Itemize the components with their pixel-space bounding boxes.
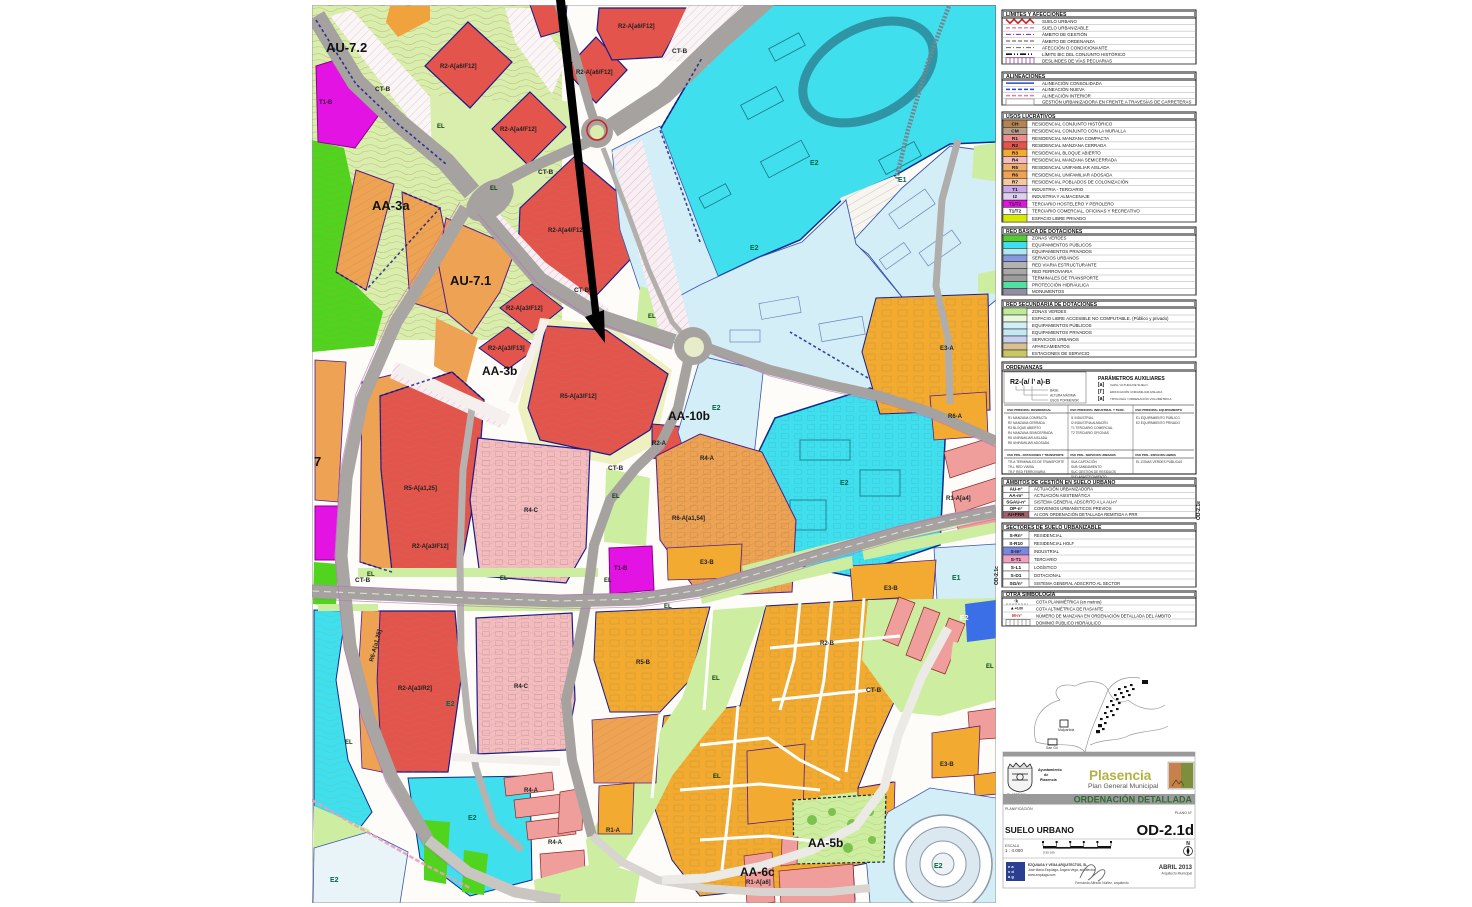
svg-text:R3: R3 <box>1012 150 1018 156</box>
svg-text:T1/T2: T1/T2 <box>1009 209 1022 215</box>
svg-text:MONUMENTOS: MONUMENTOS <box>1032 289 1064 294</box>
svg-text:AA-6c: AA-6c <box>740 865 775 879</box>
svg-text:ZONAS VERDES: ZONAS VERDES <box>1032 236 1066 241</box>
svg-text:T1-B: T1-B <box>319 100 333 106</box>
svg-text:EL: EL <box>712 676 720 682</box>
svg-text:ORDENACIÓN DETALLADA: ORDENACIÓN DETALLADA <box>1074 794 1193 805</box>
svg-text:N: N <box>1186 841 1190 847</box>
svg-text:CT-B: CT-B <box>375 86 390 93</box>
svg-text:RESIDENCIAL HOLF: RESIDENCIAL HOLF <box>1034 541 1075 546</box>
svg-text:EQUIPAMIENTOS PRIVADOS: EQUIPAMIENTOS PRIVADOS <box>1032 330 1092 335</box>
svg-text:TERMINALES DE TRANSPORTE: TERMINALES DE TRANSPORTE <box>1032 276 1099 281</box>
svg-text:PROTECCIÓN HIDRÁULICA: PROTECCIÓN HIDRÁULICA <box>1032 282 1089 287</box>
svg-text:T2 TERCIARIO OFICINAS: T2 TERCIARIO OFICINAS <box>1071 431 1109 435</box>
svg-text:EQUIPAMIENTOS PRIVADOS: EQUIPAMIENTOS PRIVADOS <box>1032 249 1092 254</box>
svg-text:ACTUACIÓN ASISTEMÁTICA: ACTUACIÓN ASISTEMÁTICA <box>1034 493 1091 498</box>
svg-text:S-R10: S-R10 <box>1009 541 1023 547</box>
svg-text:TR-A TERMINALES DE TRANSPORTE: TR-A TERMINALES DE TRANSPORTE <box>1008 460 1064 464</box>
svg-text:CT-B: CT-B <box>574 287 589 294</box>
svg-text:APARCAMIENTOS: APARCAMIENTOS <box>1032 344 1070 349</box>
svg-text:LÍMITE BIC DEL CONJUNTO HISTÓR: LÍMITE BIC DEL CONJUNTO HISTÓRICO <box>1042 52 1126 57</box>
svg-text:OD-2.1e: OD-2.1e <box>1196 501 1202 520</box>
svg-text:R1-A[a4]: R1-A[a4] <box>946 496 971 502</box>
svg-text:OD-2.1c: OD-2.1c <box>994 566 1000 585</box>
svg-text:E2: E2 <box>810 160 819 167</box>
svg-text:▲+0,00: ▲+0,00 <box>1010 606 1023 611</box>
svg-text:E2: E2 <box>840 480 849 487</box>
svg-text:COTA ALTIMÉTRICA DE RASANTE: COTA ALTIMÉTRICA DE RASANTE <box>1036 606 1103 611</box>
svg-text:ABRIL 2013: ABRIL 2013 <box>1159 865 1193 871</box>
svg-text:E3-A: E3-A <box>940 346 954 352</box>
svg-text:de: de <box>1044 773 1048 777</box>
svg-text:AI CON ORDENACIÓN DETALLADA RE: AI CON ORDENACIÓN DETALLADA REMITIDA A P… <box>1034 512 1137 517</box>
svg-text:RESIDENCIAL POBLADOS DE COLONI: RESIDENCIAL POBLADOS DE COLONIZACIÓN <box>1032 180 1128 185</box>
svg-text:T1-B: T1-B <box>614 566 628 572</box>
svg-text:ALINEACIÓN INTERIOR: ALINEACIÓN INTERIOR <box>1042 93 1091 98</box>
svg-text:San Gil: San Gil <box>1046 746 1058 750</box>
svg-text:SISTEMA GENERAL ADSCRITO AL SE: SISTEMA GENERAL ADSCRITO AL SECTOR <box>1034 581 1120 586</box>
svg-text:Plasencia: Plasencia <box>1040 778 1058 782</box>
svg-text:USOS LUCRATIVOS: USOS LUCRATIVOS <box>1006 114 1056 120</box>
svg-text:ALINEACIÓN CONSOLIDADA: ALINEACIÓN CONSOLIDADA <box>1042 81 1102 86</box>
svg-text:RESIDENCIAL BLOQUE ABIERTO: RESIDENCIAL BLOQUE ABIERTO <box>1032 150 1101 155</box>
svg-text:RESIDENCIAL UNIFAMILIAR ADOSAD: RESIDENCIAL UNIFAMILIAR ADOSADA <box>1032 172 1112 177</box>
svg-text:AU-n°: AU-n° <box>1010 487 1023 492</box>
svg-text:Malpartida: Malpartida <box>1058 728 1074 732</box>
svg-text:SERVICIOS URBANOS: SERVICIOS URBANOS <box>1032 256 1079 261</box>
svg-text:EQUIPAMIENTOS PÚBLICOS: EQUIPAMIENTOS PÚBLICOS <box>1032 242 1092 247</box>
svg-text:CONVENIOS URBANÍSTICOS PREVIOS: CONVENIOS URBANÍSTICOS PREVIOS <box>1034 506 1112 511</box>
svg-text:E3-B: E3-B <box>700 560 714 566</box>
svg-text:OD-2.1d: OD-2.1d <box>1136 822 1194 839</box>
svg-text:SUC GESTIÓN DE RESIDUOS: SUC GESTIÓN DE RESIDUOS <box>1071 469 1116 474</box>
svg-text:E1: E1 <box>952 575 961 582</box>
svg-text:EZQUIAGA Y VEGA ARQUITECTOS, S: EZQUIAGA Y VEGA ARQUITECTOS, SL <box>1028 863 1087 867</box>
svg-text:E2: E2 <box>446 701 455 708</box>
svg-text:PLANO N°: PLANO N° <box>1175 811 1193 815</box>
svg-text:R2-A: R2-A <box>652 441 667 447</box>
svg-text:AFECCIÓN O CONDICIONANTE: AFECCIÓN O CONDICIONANTE <box>1042 45 1107 50</box>
svg-text:CM: CM <box>1011 129 1018 135</box>
svg-text:EL: EL <box>490 186 498 192</box>
svg-text:AA-5b: AA-5b <box>808 836 843 850</box>
svg-text:www.ezquiaga.com: www.ezquiaga.com <box>1028 873 1056 877</box>
svg-text:I2 INDUSTRIA ALMACÉN: I2 INDUSTRIA ALMACÉN <box>1071 420 1108 425</box>
svg-text:T1/T2: T1/T2 <box>1009 201 1022 207</box>
svg-text:R4 MANZANA SEMICERRADA: R4 MANZANA SEMICERRADA <box>1008 431 1054 435</box>
svg-text:ÁMBITO DE GESTIÓN: ÁMBITO DE GESTIÓN <box>1042 32 1087 37</box>
svg-text:Fernando Alfredo Núñez, arquit: Fernando Alfredo Núñez, arquitecto <box>1075 881 1129 885</box>
svg-text:EL: EL <box>437 124 445 130</box>
svg-text:S-In°: S-In° <box>1011 549 1022 555</box>
svg-text:Arquitecto Municipal: Arquitecto Municipal <box>1161 872 1192 876</box>
svg-text:CT-B: CT-B <box>866 687 881 694</box>
svg-text:E2: E2 <box>330 877 339 884</box>
svg-text:AA-3b: AA-3b <box>482 364 517 378</box>
svg-text:USO PRINCIPAL EQUIPAMIENTO: USO PRINCIPAL EQUIPAMIENTO <box>1135 408 1183 412</box>
svg-text:R2-A[a4/F12]: R2-A[a4/F12] <box>548 228 585 234</box>
svg-text:RED FERROVIARIA: RED FERROVIARIA <box>1032 269 1072 274</box>
svg-text:ALTURA MÁXIMA: ALTURA MÁXIMA <box>1050 394 1076 398</box>
svg-text:EL: EL <box>713 774 721 780</box>
svg-text:E1: E1 <box>898 177 907 184</box>
svg-text:R6: R6 <box>1012 172 1018 178</box>
svg-text:R2-B: R2-B <box>820 641 835 647</box>
svg-text:0 50 100: 0 50 100 <box>1043 851 1055 855</box>
svg-text:[a]: [a] <box>1098 396 1104 402</box>
svg-text:CAPA / ALTURA DE SUELO: CAPA / ALTURA DE SUELO <box>1110 383 1148 387</box>
svg-text:T1: T1 <box>1012 187 1018 193</box>
svg-text:R2-A[a3/R2]: R2-A[a3/R2] <box>398 686 432 692</box>
svg-text:EL: EL <box>345 740 353 746</box>
svg-text:ORDENANZAS: ORDENANZAS <box>1006 365 1043 371</box>
svg-text:ACTUACIÓN URBANIZADORA: ACTUACIÓN URBANIZADORA <box>1034 487 1093 492</box>
svg-text:RED SECUNDARIA DE DOTACIONES: RED SECUNDARIA DE DOTACIONES <box>1006 302 1098 308</box>
svg-text:[l’]: [l’] <box>1098 389 1104 395</box>
svg-text:SUA CAPTACIÓN: SUA CAPTACIÓN <box>1071 459 1097 464</box>
svg-text:DOMINIO PÚBLICO HIDRÁULICO: DOMINIO PÚBLICO HIDRÁULICO <box>1036 620 1102 625</box>
svg-text:ALINEACIÓN NUEVA: ALINEACIÓN NUEVA <box>1042 87 1085 92</box>
svg-text:RESIDENCIAL UNIFAMILIAR AISLAD: RESIDENCIAL UNIFAMILIAR AISLADA <box>1032 165 1109 170</box>
svg-text:R2-A[a3/F13]: R2-A[a3/F13] <box>488 346 525 352</box>
svg-text:RESIDENCIAL MANZANA SEMICERRAD: RESIDENCIAL MANZANA SEMICERRADA <box>1032 158 1117 163</box>
svg-text:PARÁMETROS AUXILIARES: PARÁMETROS AUXILIARES <box>1098 375 1165 382</box>
svg-text:CT-B: CT-B <box>672 48 687 55</box>
svg-text:RESIDENCIAL CONJUNTO HISTÓRICO: RESIDENCIAL CONJUNTO HISTÓRICO <box>1032 121 1113 126</box>
svg-text:R1: R1 <box>1012 136 1018 142</box>
svg-text:R2-A[a3/F12]: R2-A[a3/F12] <box>506 306 543 312</box>
svg-text:R6-A[a1,54]: R6-A[a1,54] <box>672 516 705 522</box>
svg-text:R3 BLOQUE ABIERTO: R3 BLOQUE ABIERTO <box>1008 426 1041 430</box>
svg-text:E1 EQUIPAMIENTO PÚBLICO: E1 EQUIPAMIENTO PÚBLICO <box>1136 415 1180 420</box>
svg-text:R6 UNIFAMILIAR ADOSADA: R6 UNIFAMILIAR ADOSADA <box>1008 441 1050 445</box>
svg-text:ALINEACIONES: ALINEACIONES <box>1006 74 1046 80</box>
svg-text:R1-A[a6]: R1-A[a6] <box>746 880 771 886</box>
svg-text:OP-n°: OP-n° <box>1010 506 1023 511</box>
svg-text:I1 INDUSTRIAL: I1 INDUSTRIAL <box>1071 416 1094 420</box>
svg-text:E2: E2 <box>468 815 477 822</box>
svg-text:R2-A[a4/F12]: R2-A[a4/F12] <box>500 127 537 133</box>
svg-text:USO PPAL. DOTACIONES Y TRANSPO: USO PPAL. DOTACIONES Y TRANSPORTE <box>1007 453 1064 457</box>
svg-text:CH: CH <box>1012 121 1019 127</box>
svg-text:Plan General Municipal: Plan General Municipal <box>1088 783 1159 790</box>
svg-text:INDUSTRIAL: INDUSTRIAL <box>1034 549 1060 554</box>
svg-text:AU-7.1: AU-7.1 <box>450 273 491 288</box>
svg-text:AA-3a: AA-3a <box>372 198 410 213</box>
svg-text:R2-A[a6/F12]: R2-A[a6/F12] <box>576 70 613 76</box>
svg-text:SUELO URBANO: SUELO URBANO <box>1042 19 1077 24</box>
svg-text:TERCIARIO COMERCIAL, OFICINAS: TERCIARIO COMERCIAL, OFICINAS Y RECREATI… <box>1032 209 1140 214</box>
svg-text:TR-F RED FERROVIARIA: TR-F RED FERROVIARIA <box>1008 470 1046 474</box>
svg-text:R4-C: R4-C <box>524 508 539 514</box>
svg-text:ESTACIONES DE SERVICIO: ESTACIONES DE SERVICIO <box>1032 351 1090 356</box>
svg-text:ESPACIO LIBRE ACCESIBLE NO COM: ESPACIO LIBRE ACCESIBLE NO COMPUTABLE. (… <box>1032 316 1169 321</box>
svg-text:SGAU-n°: SGAU-n° <box>1006 499 1026 504</box>
svg-text:R5 UNIFAMILIAR AISLADA: R5 UNIFAMILIAR AISLADA <box>1008 436 1048 440</box>
svg-text:DESLINDES DE VÍAS PECUARIAS: DESLINDES DE VÍAS PECUARIAS <box>1042 59 1112 64</box>
svg-text:R2-A[a6/F12]: R2-A[a6/F12] <box>618 24 655 30</box>
svg-text:M-n°: M-n° <box>1012 613 1022 618</box>
svg-text:R2-(a/ l’ a)-B: R2-(a/ l’ a)-B <box>1010 379 1050 386</box>
svg-text:E2 EQUIPAMIENTO PRIVADO: E2 EQUIPAMIENTO PRIVADO <box>1136 421 1180 425</box>
svg-text:ZONAS VERDES: ZONAS VERDES <box>1032 309 1066 314</box>
svg-text:DOTACIONAL: DOTACIONAL <box>1034 573 1062 578</box>
svg-text:a g: a g <box>1008 874 1014 879</box>
svg-text:S-Rn°: S-Rn° <box>1009 533 1022 539</box>
svg-text:CT-B: CT-B <box>355 577 370 584</box>
svg-text:RED VIARIA ESTRUCTURANTE: RED VIARIA ESTRUCTURANTE <box>1032 262 1097 267</box>
svg-text:E3-B: E3-B <box>884 586 898 592</box>
svg-text:R5-A[a3/F12]: R5-A[a3/F12] <box>560 394 597 400</box>
svg-text:EDIFICACIÓN UNIFAMILIAR AISLAD: EDIFICACIÓN UNIFAMILIAR AISLADA <box>1110 389 1162 394</box>
svg-text:INDUSTRIA - TERCIARIO: INDUSTRIA - TERCIARIO <box>1032 187 1084 192</box>
svg-text:Ayuntamiento: Ayuntamiento <box>1038 768 1063 772</box>
svg-text:·k: ·k <box>1014 599 1018 604</box>
svg-text:COTA PLANIMÉTRICA (en metros): COTA PLANIMÉTRICA (en metros) <box>1036 599 1102 604</box>
svg-text:[a]: [a] <box>1098 382 1104 388</box>
svg-text:T1 TERCIARIO COMERCIAL: T1 TERCIARIO COMERCIAL <box>1071 426 1113 430</box>
svg-text:LOGÍSTICO: LOGÍSTICO <box>1034 565 1058 570</box>
svg-text:S-L1: S-L1 <box>1011 565 1022 571</box>
svg-text:EQUIPAMIENTOS PÚBLICOS: EQUIPAMIENTOS PÚBLICOS <box>1032 323 1092 328</box>
svg-text:USO PRINCIPAL INDUSTRIAL Y TER: USO PRINCIPAL INDUSTRIAL Y TERC. <box>1070 408 1125 412</box>
svg-text:7: 7 <box>314 454 321 469</box>
svg-text:EL: EL <box>986 664 994 670</box>
svg-text:USO PPAL. ESPACIOS LIBRES: USO PPAL. ESPACIOS LIBRES <box>1135 453 1176 457</box>
svg-text:GESTIÓN URBANIZADORA EN FRENTE: GESTIÓN URBANIZADORA EN FRENTE A TRAVESÍ… <box>1042 100 1191 105</box>
svg-text:Plasencia: Plasencia <box>1089 768 1152 783</box>
svg-text:ESPACIO LIBRE PRIVADO: ESPACIO LIBRE PRIVADO <box>1032 216 1086 221</box>
svg-text:ÁMBITOS DE GESTIÓN EN SUELO UR: ÁMBITOS DE GESTIÓN EN SUELO URBANO <box>1006 478 1115 486</box>
svg-text:TERCIARIO: TERCIARIO <box>1034 557 1058 562</box>
svg-text:PLANIFICACIÓN: PLANIFICACIÓN <box>1005 806 1033 811</box>
svg-text:R1-A: R1-A <box>606 828 621 834</box>
svg-text:RESIDENCIAL CONJUNTO CON LA MU: RESIDENCIAL CONJUNTO CON LA MURALLA <box>1032 129 1126 134</box>
svg-text:E2: E2 <box>712 405 721 412</box>
svg-text:SG/n°: SG/n° <box>1009 581 1022 587</box>
svg-text:R4: R4 <box>1012 158 1018 164</box>
svg-text:R4-A: R4-A <box>700 456 715 462</box>
svg-text:R5-B: R5-B <box>636 660 651 666</box>
svg-text:E2: E2 <box>960 615 969 622</box>
svg-text:R4-A: R4-A <box>548 840 563 846</box>
svg-text:S-T1: S-T1 <box>1011 557 1022 563</box>
svg-text:R2: R2 <box>1012 143 1018 149</box>
svg-text:LÍMITES Y AFECCIONES: LÍMITES Y AFECCIONES <box>1006 10 1067 18</box>
svg-text:E2: E2 <box>934 863 943 870</box>
svg-text:RESIDENCIAL MANZANA COMPACTA: RESIDENCIAL MANZANA COMPACTA <box>1032 136 1109 141</box>
svg-text:EL: EL <box>604 578 612 584</box>
svg-text:R7: R7 <box>1012 180 1018 186</box>
svg-text:R4-C: R4-C <box>514 684 529 690</box>
svg-text:R2-A[a6/F12]: R2-A[a6/F12] <box>440 64 477 70</box>
svg-text:SERVICIOS URBANOS: SERVICIOS URBANOS <box>1032 337 1079 342</box>
svg-text:ÁMBITO DE ORDENANZA: ÁMBITO DE ORDENANZA <box>1042 39 1095 44</box>
svg-text:SUB SANEAMIENTO: SUB SANEAMIENTO <box>1071 465 1102 469</box>
svg-text:RESIDENCIAL MANZANA CERRADA: RESIDENCIAL MANZANA CERRADA <box>1032 143 1106 148</box>
svg-text:RED BÁSICA DE DOTACIONES: RED BÁSICA DE DOTACIONES <box>1006 228 1083 235</box>
svg-text:SUELO URBANO: SUELO URBANO <box>1005 825 1074 835</box>
svg-text:TERCIARIO HOSTELERO Y PEROLERO: TERCIARIO HOSTELERO Y PEROLERO <box>1032 201 1114 206</box>
svg-text:RESIDENCIAL: RESIDENCIAL <box>1034 533 1063 538</box>
svg-text:EL ZONAS VERDES PÚBLICAS: EL ZONAS VERDES PÚBLICAS <box>1136 459 1182 464</box>
svg-text:TIPOLOGÍA / ORDENACIÓN VOLUMÉT: TIPOLOGÍA / ORDENACIÓN VOLUMÉTRICA <box>1110 396 1171 401</box>
svg-text:R5: R5 <box>1012 165 1018 171</box>
svg-text:EL: EL <box>664 604 672 610</box>
svg-text:R5-A[a1,25]: R5-A[a1,25] <box>404 486 437 492</box>
svg-text:E3-B: E3-B <box>940 762 954 768</box>
svg-text:R6-A: R6-A <box>948 414 963 420</box>
svg-text:I2: I2 <box>1013 194 1017 200</box>
svg-text:AI+PRR: AI+PRR <box>1008 512 1026 517</box>
svg-text:EL: EL <box>648 314 656 320</box>
svg-text:USOS PORMENOR: USOS PORMENOR <box>1050 399 1079 403</box>
svg-text:CT-B: CT-B <box>608 465 623 472</box>
svg-text:AA-m°: AA-m° <box>1009 493 1023 498</box>
svg-text:INDUSTRIA Y ALMACENAJE: INDUSTRIA Y ALMACENAJE <box>1032 194 1090 199</box>
svg-text:EL: EL <box>612 494 620 500</box>
svg-text:AA-10b: AA-10b <box>668 409 710 423</box>
svg-text:R1 MANZANA COMPACTA: R1 MANZANA COMPACTA <box>1008 416 1048 420</box>
svg-text:OTRA SIMBOLOGÍA: OTRA SIMBOLOGÍA <box>1006 590 1056 598</box>
svg-text:R4-A: R4-A <box>524 788 539 794</box>
svg-text:S-D1: S-D1 <box>1011 573 1022 579</box>
svg-text:USO PRINCIPAL RESIDENCIAL: USO PRINCIPAL RESIDENCIAL <box>1007 408 1052 412</box>
svg-text:USO PPAL. SERVICIOS URBANOS: USO PPAL. SERVICIOS URBANOS <box>1070 453 1116 457</box>
svg-text:R2-A[a3/F12]: R2-A[a3/F12] <box>412 544 449 550</box>
svg-text:E2: E2 <box>750 245 759 252</box>
svg-text:EL: EL <box>500 576 508 582</box>
svg-text:SUELO URBANIZABLE: SUELO URBANIZABLE <box>1042 26 1089 31</box>
svg-text:BASE: BASE <box>1050 389 1059 393</box>
svg-text:1 : 4.000: 1 : 4.000 <box>1005 848 1023 853</box>
svg-text:AU-7.2: AU-7.2 <box>326 40 367 55</box>
svg-text:R2 MANZANA CERRADA: R2 MANZANA CERRADA <box>1008 421 1046 425</box>
svg-text:SECTORES DE SUELO URBANIZABLE: SECTORES DE SUELO URBANIZABLE <box>1006 525 1102 531</box>
svg-text:NÚMERO DE MANZANA EN ORDENACIÓ: NÚMERO DE MANZANA EN ORDENACIÓN DETALLAD… <box>1036 613 1172 618</box>
svg-text:SISTEMA GENERAL ADSCRITO A LA: SISTEMA GENERAL ADSCRITO A LA AU-n° <box>1034 499 1118 504</box>
svg-text:TR-L RED VIARIA: TR-L RED VIARIA <box>1008 465 1035 469</box>
svg-text:CT-B: CT-B <box>538 169 553 176</box>
